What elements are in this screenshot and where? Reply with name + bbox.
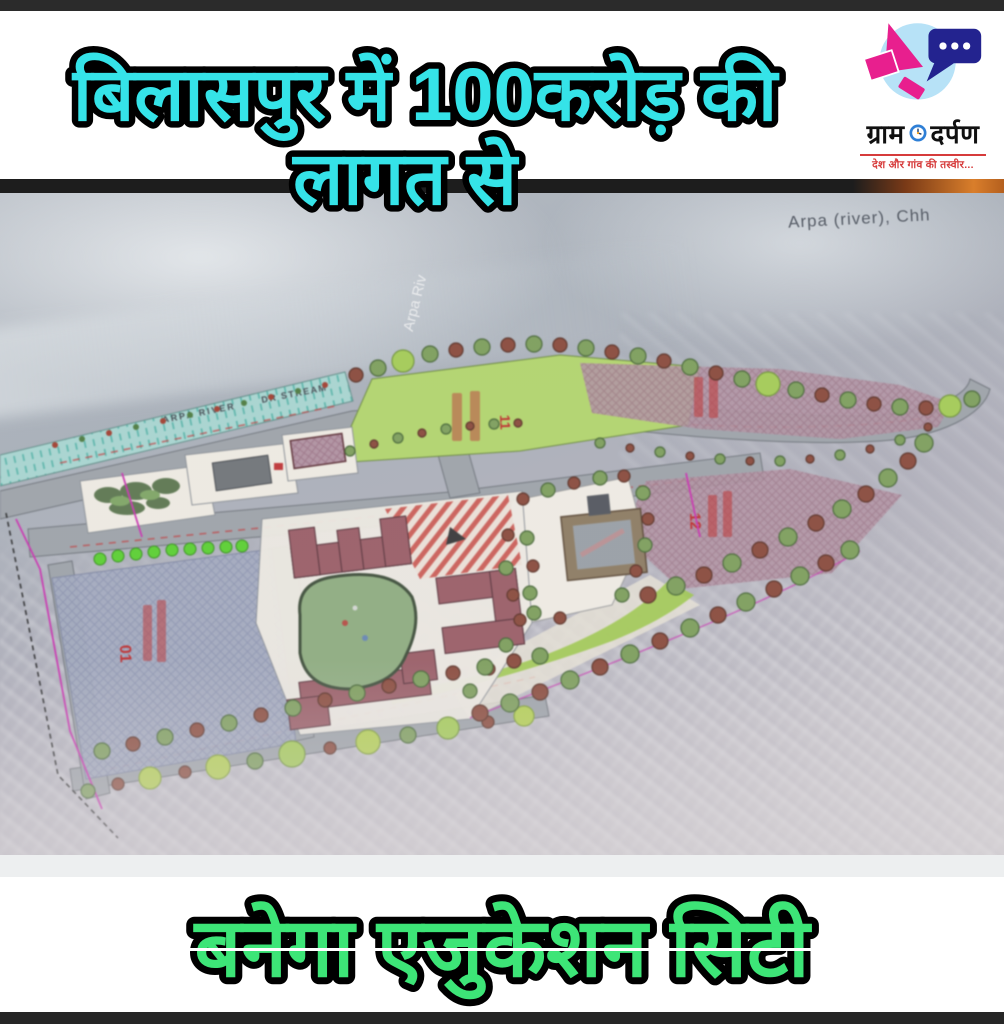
speech-bubble-icon bbox=[927, 29, 982, 82]
clock-icon bbox=[909, 124, 927, 142]
brand-rule bbox=[860, 154, 986, 156]
brand-tagline: देश और गांव की तस्वीर... bbox=[843, 158, 1003, 172]
brand-word-right: दर्पण bbox=[931, 115, 980, 151]
footer-headline: बनेगा एजुकेशन सिटी bbox=[0, 872, 1004, 1022]
footer-white-line bbox=[0, 948, 1004, 951]
brand-logo: ग्राम दर्पण देश और गांव की तस्वीर... bbox=[843, 16, 1003, 178]
plot-11-label: 11 bbox=[497, 415, 514, 431]
news-graphic: बिलासपुर में 100करोड़ की ग्राम bbox=[0, 0, 1004, 1024]
separator-bar-accent bbox=[853, 179, 1004, 193]
megaphone-logo-emblem bbox=[848, 16, 998, 116]
plot-01-label: 01 bbox=[116, 645, 134, 663]
plot-12: 12 bbox=[622, 469, 902, 589]
brand-word-left: ग्राम bbox=[867, 115, 905, 151]
site-plan-drawing: ARPA RIVER DR STREAM bbox=[0, 323, 1004, 860]
building-tower bbox=[587, 494, 611, 516]
brand-name: ग्राम दर्पण bbox=[843, 115, 1003, 151]
red-mark bbox=[274, 463, 283, 470]
headline-line2: लागत से bbox=[0, 104, 810, 254]
headline-line2-text: लागत से bbox=[291, 136, 520, 220]
top-bar bbox=[0, 0, 1004, 11]
aerial-map: Arpa (river), Chh Arpa Riv bbox=[0, 193, 1004, 860]
